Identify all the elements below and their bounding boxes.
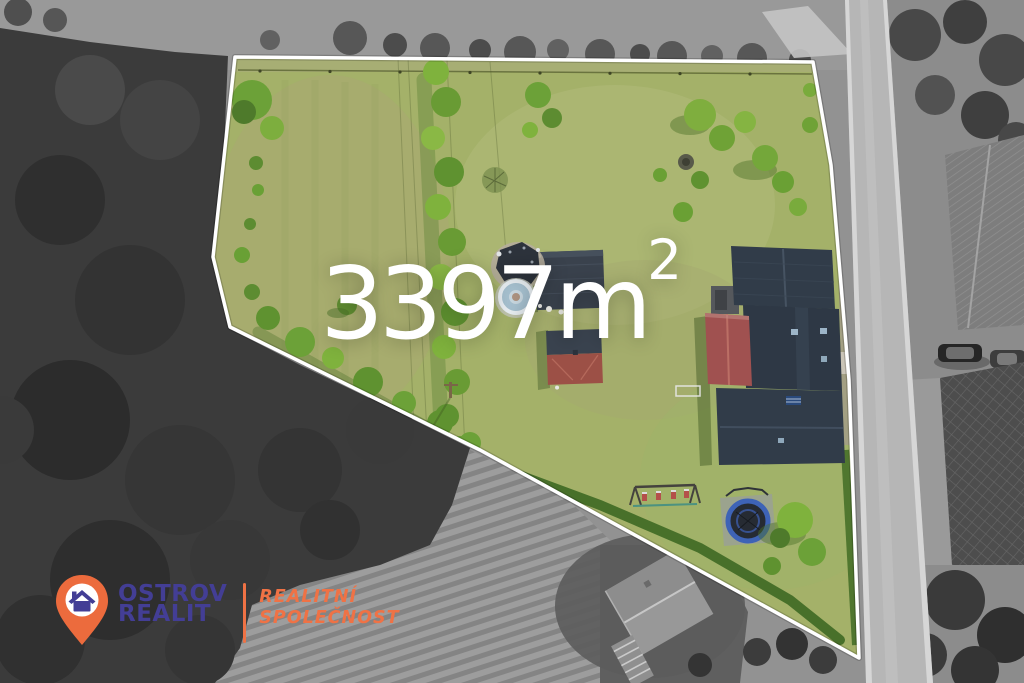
brand-logo: OSTROV REALIT REALITNÍ SPOLEČNOST: [54, 574, 400, 647]
fire-pit: [678, 154, 694, 170]
solar-panel: [786, 396, 801, 405]
aerial-property-photo: 3397m2 OSTROV REALIT REALITNÍ SPOLEČNOST: [0, 0, 1024, 683]
location-pin-icon: [54, 574, 110, 647]
area-label: 3397m2: [320, 254, 682, 354]
area-value: 3397m: [320, 245, 647, 362]
brand-tagline: REALITNÍ SPOLEČNOST: [259, 587, 399, 629]
tagline-line2: SPOLEČNOST: [259, 608, 399, 629]
tilled-field: [940, 362, 1024, 565]
tagline-line1: REALITNÍ: [259, 587, 399, 608]
neighbor-roof: [945, 135, 1024, 330]
brand-line2: REALIT: [118, 604, 227, 624]
brand-name: OSTROV REALIT: [118, 584, 227, 624]
logo-divider: [243, 583, 246, 643]
area-superscript: 2: [647, 228, 682, 292]
